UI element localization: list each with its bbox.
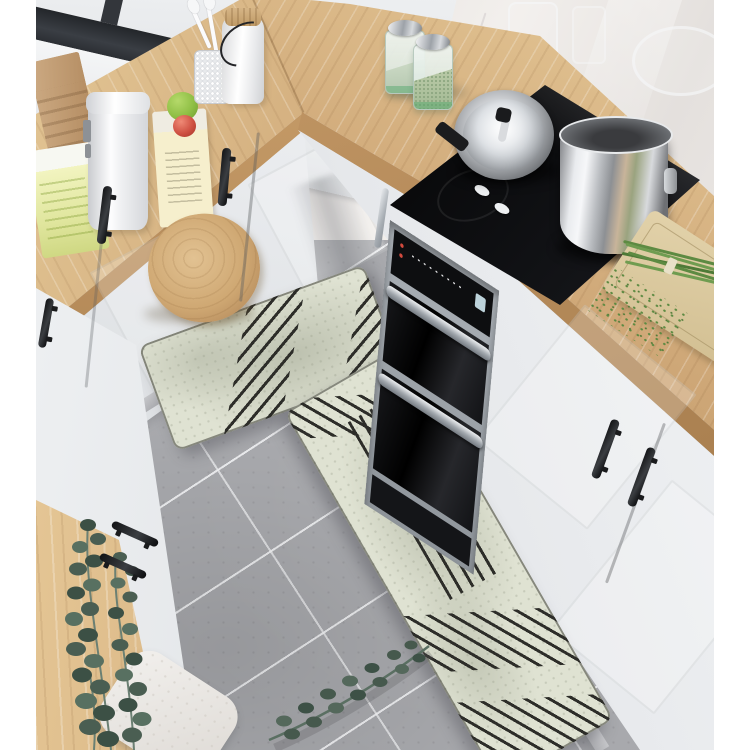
carton-label-text: [165, 149, 203, 203]
jar-green-base: [414, 102, 452, 109]
cooktop-button: [493, 201, 511, 216]
left-white-margin: [0, 0, 36, 750]
kitchen-scene-photo: [0, 0, 750, 750]
white-canister: [88, 96, 148, 230]
stockpot-handle: [664, 168, 677, 194]
canister-clamp: [85, 144, 91, 158]
oven-indicator-light: [400, 243, 404, 249]
packet-print: [39, 173, 94, 239]
canister-lid: [86, 92, 150, 114]
canister-clamp: [83, 120, 91, 142]
spice-jar-lid: [388, 20, 422, 36]
spice-jar-lid: [416, 34, 450, 50]
glass-tumbler-faint: [572, 6, 606, 64]
lidded-pot: [454, 90, 554, 180]
photo-content: [36, 0, 714, 750]
oven-indicator-light: [399, 253, 403, 259]
stockpot-opening: [559, 116, 673, 154]
eucalyptus-sprig: [261, 628, 436, 750]
red-apple: [173, 115, 196, 137]
lid-knob: [495, 107, 513, 124]
oven-display: [475, 293, 486, 313]
spice-jar: [413, 44, 453, 110]
eucalyptus-plant: [36, 505, 196, 750]
right-white-margin: [714, 0, 750, 750]
